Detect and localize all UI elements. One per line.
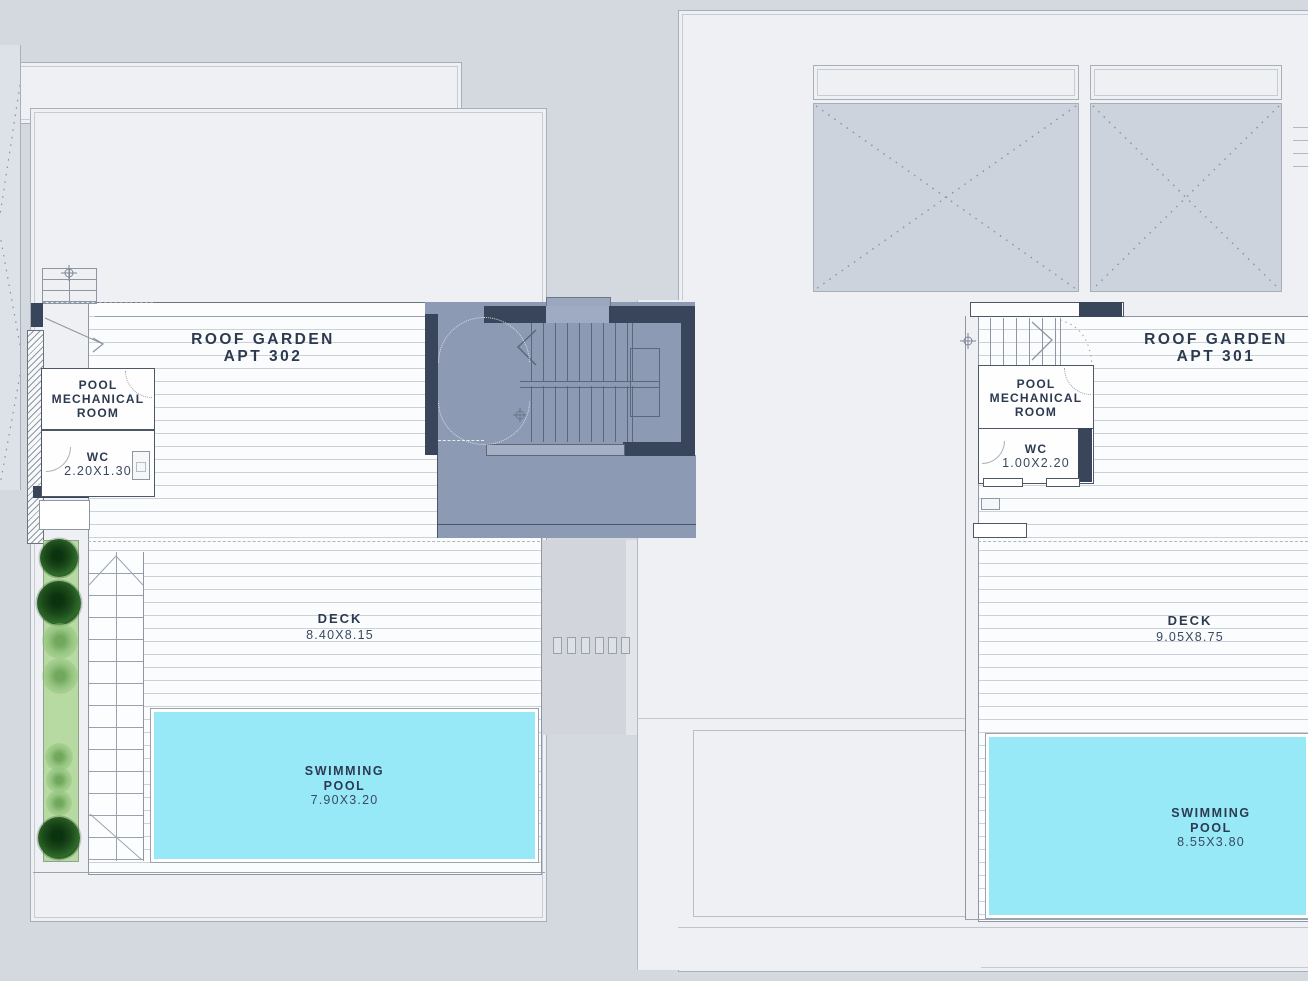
right-edge-detail-lines <box>1293 115 1308 170</box>
stair-wall-top-right <box>609 306 683 323</box>
tree-icon <box>38 817 80 859</box>
roof-garden-text: ROOF GARDEN <box>1106 331 1308 348</box>
stair-flight-lower <box>520 386 633 442</box>
stair-dashed-line <box>438 440 484 441</box>
planter-box <box>1090 65 1282 100</box>
pool-label-block: SWIMMING POOL 8.55X3.80 <box>1100 806 1308 849</box>
wc-dimension: 1.00X2.20 <box>1002 456 1070 470</box>
skylight-cross-lines <box>0 45 20 490</box>
deck-label-apt-301: DECK 9.05X8.75 <box>1122 613 1258 646</box>
roof-garden-label-apt-302: ROOF GARDEN APT 302 <box>153 331 373 365</box>
pool-mechanical-room-apt-302: POOL MECHANICAL ROOM <box>41 368 155 430</box>
deck-text: DECK <box>272 611 408 626</box>
swimming-pool-apt-301: SWIMMING POOL 8.55X3.80 <box>985 733 1308 919</box>
stair-wall-left <box>425 314 438 455</box>
unit-bottom-wall-line <box>33 872 545 873</box>
pergola-end-lines <box>89 552 143 861</box>
unit-bottom-wall-line <box>965 919 1308 920</box>
door-swing-dotted-arc-icon <box>1058 318 1094 368</box>
skylight <box>1090 103 1282 292</box>
apt-number-text: APT 302 <box>153 348 373 365</box>
paver <box>567 637 576 654</box>
door-stub <box>983 478 1023 487</box>
paver <box>595 637 604 654</box>
tree-icon <box>42 658 78 694</box>
floor-plan-canvas: POOL MECHANICAL ROOM WC 2.20X1.30 ROOF G… <box>0 0 1308 981</box>
pool-mechanical-room-apt-301: POOL MECHANICAL ROOM <box>978 365 1094 430</box>
tree-icon <box>37 581 81 625</box>
tree-icon <box>46 790 72 816</box>
tree-icon <box>42 623 78 659</box>
skylight-cross-icon <box>814 104 1078 291</box>
unit-left-wall-band-apt-301 <box>965 316 979 920</box>
apron-edge-line <box>438 524 696 525</box>
apt-number-text: APT 301 <box>1106 348 1308 365</box>
roof-garden-text: ROOF GARDEN <box>153 331 373 348</box>
wc-dimension: 2.20X1.30 <box>64 464 132 478</box>
skylight-cross-icon <box>1091 104 1281 291</box>
entry-stair-arrow-icon <box>43 316 113 358</box>
skylight <box>813 103 1079 292</box>
deck-label-apt-302: DECK 8.40X8.15 <box>272 611 408 644</box>
deck-dimension: 9.05X8.75 <box>1156 630 1224 644</box>
wc-room-apt-302: WC 2.20X1.30 <box>41 430 155 497</box>
door-stub <box>1046 478 1080 487</box>
stair-landing-bar <box>486 444 625 456</box>
toilet-icon <box>132 451 150 480</box>
wc-label: WC <box>1025 442 1047 456</box>
paver <box>553 637 562 654</box>
wc-room-apt-301: WC 1.00X2.20 <box>978 428 1094 484</box>
stair-well-rail <box>630 348 660 417</box>
tree-icon <box>40 539 78 577</box>
pergola-strip <box>88 552 144 861</box>
wall-dark-segment <box>1078 428 1092 482</box>
wall-dark-segment <box>31 303 43 327</box>
stair-core-apron <box>437 455 696 538</box>
survey-marker-icon <box>61 265 77 281</box>
paver <box>608 637 617 654</box>
pool-label: SWIMMING POOL <box>305 764 384 793</box>
swimming-pool-apt-302: SWIMMING POOL 7.90X3.20 <box>150 708 539 863</box>
roof-step-line <box>637 718 980 719</box>
wall-detail-box <box>981 498 1000 510</box>
roof-edge-line <box>678 927 1308 928</box>
deck-zone-dashed-line <box>978 541 1308 542</box>
wall-recess <box>39 500 90 530</box>
paver <box>581 637 590 654</box>
stair-top-center-bar <box>546 306 609 323</box>
deck-text: DECK <box>1122 613 1258 628</box>
survey-marker-icon <box>960 333 976 349</box>
paver <box>621 637 630 654</box>
planter-box <box>813 65 1079 100</box>
stair-direction-arrow-icon <box>1028 320 1058 362</box>
roof-garden-label-apt-301: ROOF GARDEN APT 301 <box>1106 331 1308 365</box>
stair-wall-bottom <box>623 442 683 456</box>
wall-dark-segment <box>1079 302 1122 317</box>
pool-label: SWIMMING POOL <box>1100 806 1308 835</box>
deck-zone-dashed-line <box>88 541 540 542</box>
stair-wall-right <box>681 306 695 456</box>
left-edge-skylight-strip <box>0 45 21 490</box>
roof-step-outline <box>693 730 972 917</box>
pool-dimension: 8.55X3.80 <box>1100 835 1308 849</box>
deck-dimension: 8.40X8.15 <box>306 628 374 642</box>
pool-dimension: 7.90X3.20 <box>311 793 379 807</box>
unit-top-wall <box>95 302 430 317</box>
wall-corner-stub <box>973 523 1027 538</box>
wc-label: WC <box>87 450 109 464</box>
